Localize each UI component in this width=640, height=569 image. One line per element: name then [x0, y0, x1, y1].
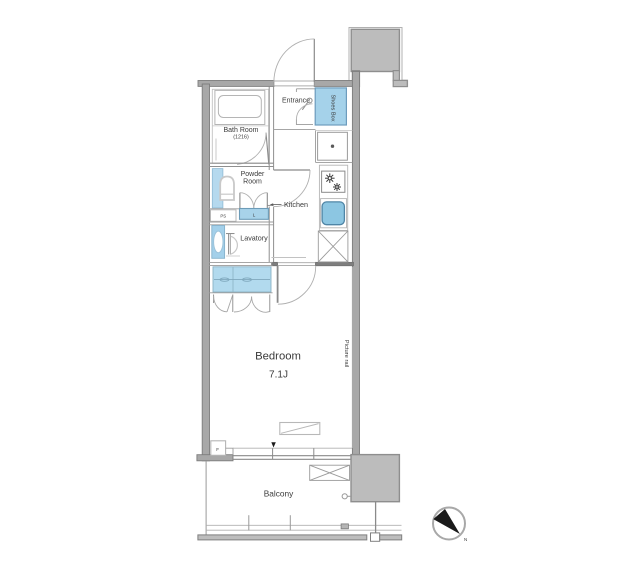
svg-text:PS: PS: [220, 214, 226, 219]
svg-text:Bedroom: Bedroom: [255, 351, 301, 363]
svg-text:F: F: [216, 447, 219, 452]
svg-text:7.1J: 7.1J: [269, 370, 288, 381]
svg-text:Bath Room: Bath Room: [223, 127, 258, 134]
svg-text:Kitchen: Kitchen: [284, 200, 308, 209]
svg-text:Lavatory: Lavatory: [240, 233, 268, 242]
svg-text:L: L: [253, 213, 256, 218]
svg-text:(1216): (1216): [233, 135, 249, 141]
svg-text:Powder: Powder: [241, 171, 265, 178]
svg-text:Entrance: Entrance: [282, 97, 310, 104]
svg-text:Picture rail: Picture rail: [343, 340, 349, 367]
svg-text:Shoes Box: Shoes Box: [330, 94, 336, 121]
svg-text:Room: Room: [243, 178, 262, 185]
svg-text:Balcony: Balcony: [264, 489, 294, 499]
svg-text:N: N: [464, 537, 467, 542]
